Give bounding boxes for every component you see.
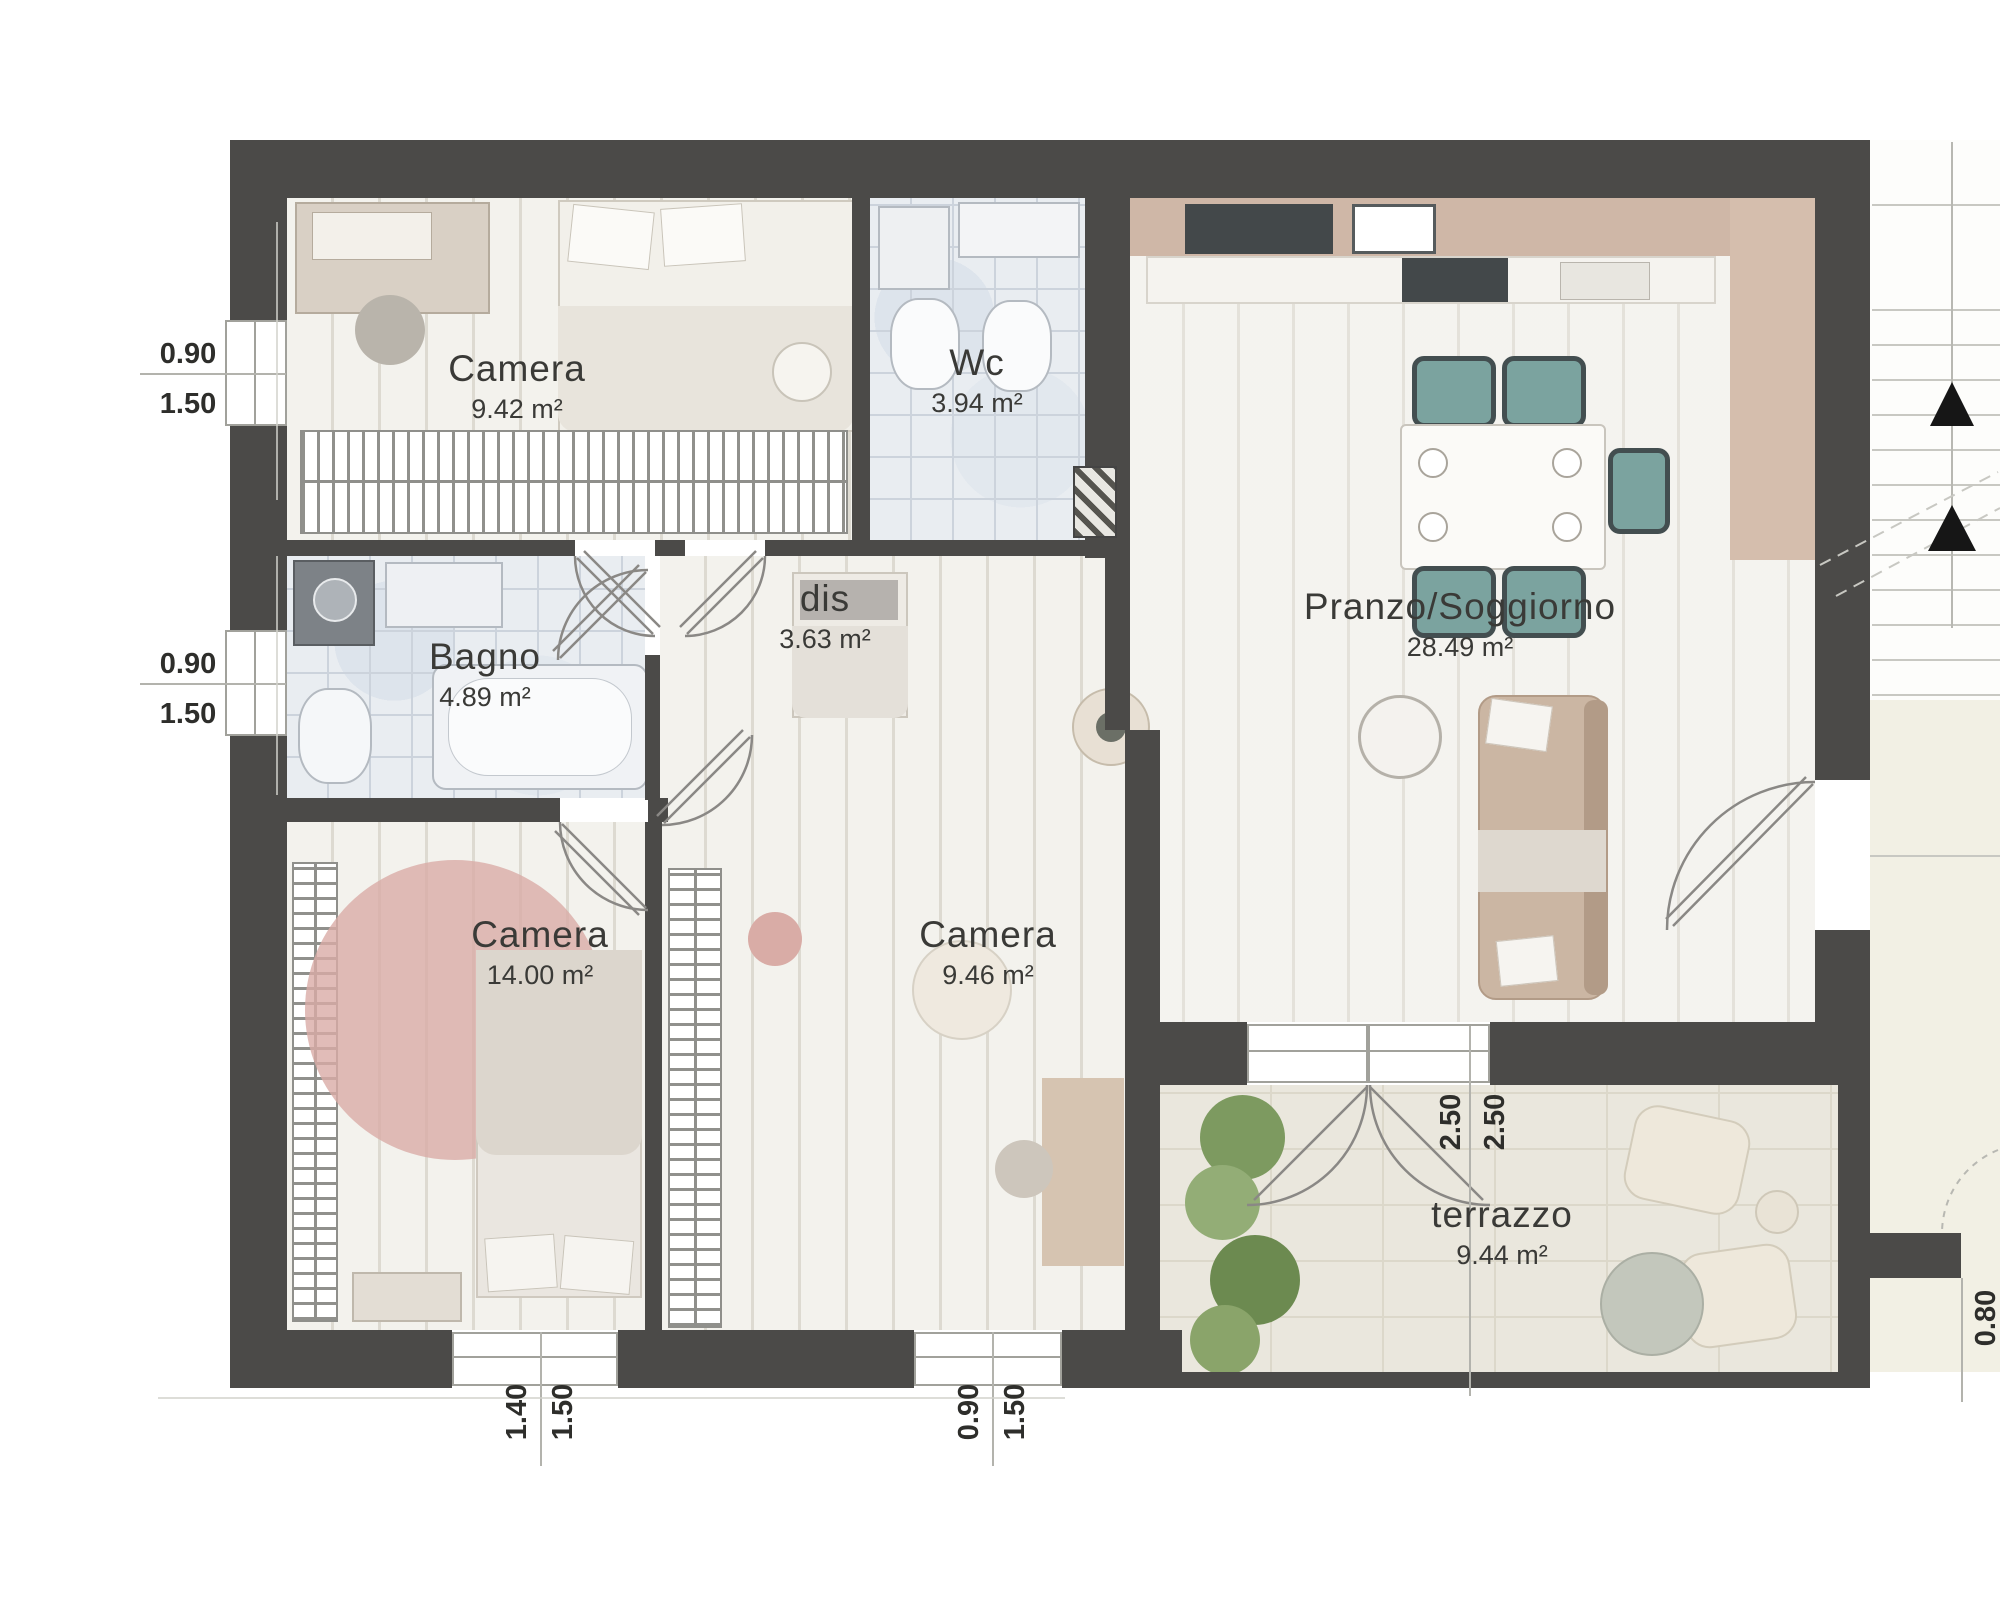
shelf [958, 202, 1080, 258]
wardrobe [300, 430, 848, 534]
coffee-table [1358, 695, 1442, 779]
pillow [660, 203, 746, 267]
wall-segment [230, 798, 560, 822]
dimension-value: 0.90 [953, 1366, 985, 1458]
plate [1552, 512, 1582, 542]
duvet [476, 950, 642, 1155]
dimension-value: 2.50 [1479, 1076, 1511, 1168]
wall-segment [1815, 930, 1870, 1085]
pouf [912, 940, 1012, 1040]
window [452, 1332, 618, 1386]
plate [1418, 512, 1448, 542]
dining-chair [1412, 566, 1496, 638]
terrace-side-table [1755, 1190, 1799, 1234]
wall-segment [860, 1330, 914, 1388]
wall-segment [1105, 556, 1130, 730]
sofa-throw [1478, 830, 1606, 892]
plant [1190, 1305, 1260, 1375]
wall-segment [230, 424, 287, 632]
wall-segment [1866, 1233, 1961, 1278]
terrace-table [1600, 1252, 1704, 1356]
dimension-value: 0.80 [1970, 1272, 2000, 1364]
dimension-value: 1.50 [999, 1366, 1031, 1458]
dining-chair [1502, 566, 1586, 638]
pillow [800, 580, 898, 620]
wall-segment [655, 540, 685, 556]
structural-column [1073, 466, 1117, 538]
kitchen-sink [1185, 204, 1333, 254]
window [225, 320, 287, 426]
small-rug [748, 912, 802, 966]
kitchen-hood [1352, 204, 1436, 254]
dining-chair [1502, 356, 1586, 428]
plate [1418, 448, 1448, 478]
wall-segment [230, 140, 1870, 198]
dimension-value: 0.90 [142, 648, 234, 680]
desk-chair [355, 295, 425, 365]
window [225, 630, 287, 736]
pantry-column [1730, 198, 1815, 560]
wardrobe [668, 868, 722, 1328]
desk [1042, 1078, 1124, 1266]
washer-door-icon [313, 578, 357, 622]
dimension-value: 2.50 [1435, 1076, 1467, 1168]
desk-items [312, 212, 432, 260]
desk-chair [995, 1140, 1053, 1198]
wall-segment [852, 198, 870, 540]
cooktop [1402, 258, 1508, 302]
wall-segment [230, 734, 287, 1330]
pillow [567, 204, 655, 270]
pillow [560, 1235, 634, 1295]
plant [1185, 1165, 1260, 1240]
wall-segment [618, 1330, 860, 1388]
dimension-value: 1.50 [547, 1366, 579, 1458]
wall-segment [648, 798, 668, 822]
wall-segment [765, 540, 1085, 556]
stool [772, 342, 832, 402]
wall-segment [1838, 1085, 1870, 1375]
dining-table [1400, 424, 1606, 570]
dining-chair [1412, 356, 1496, 428]
dimension-value: 1.50 [142, 388, 234, 420]
bidet [890, 298, 960, 390]
wall-segment [287, 540, 575, 556]
dimension-value: 0.90 [142, 338, 234, 370]
entry-door-opening [1815, 782, 1870, 928]
washing-machine [878, 206, 950, 290]
wall-segment [1490, 1022, 1815, 1085]
duvet [792, 626, 908, 718]
plate [1552, 448, 1582, 478]
dresser [352, 1272, 462, 1322]
wall-segment [230, 198, 287, 322]
sofa-pillow [1485, 698, 1553, 752]
dining-chair [1608, 448, 1670, 534]
toilet [298, 688, 372, 784]
wall-segment [1815, 140, 1870, 780]
dimension-value: 1.40 [501, 1366, 533, 1458]
sofa-pillow [1496, 935, 1558, 987]
floor-plan: Camera 9.42 m² Wc 3.94 m² Pranzo/Soggior… [0, 0, 2000, 1621]
pillow [484, 1234, 558, 1293]
counter-basin [1560, 262, 1650, 300]
dimension-value: 1.50 [142, 698, 234, 730]
stairwell-area [1870, 140, 2000, 700]
wall-segment [645, 822, 662, 1330]
terrace-door-mullion [1366, 1024, 1370, 1083]
wall-segment [1160, 1372, 1870, 1388]
wall-segment [645, 655, 660, 800]
bathtub-basin [448, 678, 632, 776]
window [914, 1332, 1062, 1386]
toilet [982, 300, 1052, 392]
sink-counter [385, 562, 503, 628]
wall-segment [1130, 1022, 1247, 1085]
wall-segment [230, 1330, 452, 1388]
